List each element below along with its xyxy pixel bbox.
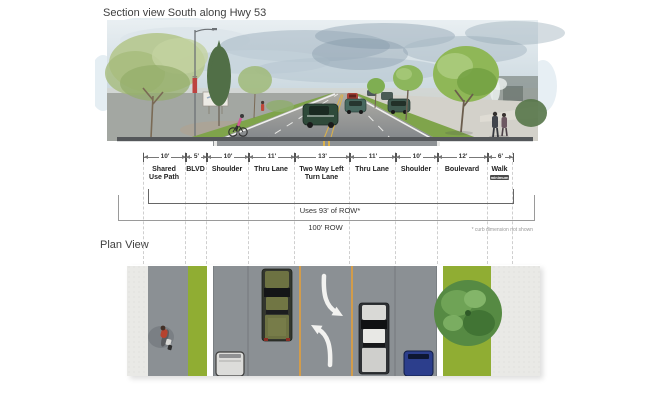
plan-view-title: Plan View [100, 239, 149, 251]
dim-segment-thru-lane-right: 11' [349, 153, 397, 162]
plan-white-car [216, 352, 244, 376]
lane-label-thru-lane-right: Thru Lane [347, 166, 397, 174]
plan-sidewalk-left [127, 266, 148, 376]
lane-label-shoulder-right: Shoulder [392, 166, 440, 174]
plan-truck-silver [359, 303, 389, 374]
plan-view-svg [127, 265, 540, 376]
curb-footnote: * curb dimension not shown [420, 227, 533, 233]
lane-label-shoulder-left: Shoulder [203, 166, 251, 174]
section-base-line [117, 137, 533, 141]
dimension-value: 13' [316, 152, 329, 162]
dim-segment-shoulder-left: 10' [206, 153, 250, 162]
dimension-value: 11' [367, 152, 379, 162]
plan-tree [434, 280, 502, 346]
dimension-value: 12' [457, 152, 470, 162]
dimension-value: 11' [266, 152, 278, 162]
dim-segment-walk: 6' [487, 153, 514, 162]
plan-truck-olive [262, 269, 292, 341]
dim-segment-shoulder-right: 10' [395, 153, 439, 162]
dimension-value: 10' [411, 152, 424, 162]
plan-blue-car [404, 351, 433, 376]
lane-label-thru-lane-left: Thru Lane [246, 166, 296, 174]
page: Section view South along Hwy 53 Plan Vie… [0, 0, 648, 400]
dim-segment-shared-use-path: 10' [143, 153, 187, 162]
dim-segment-turn-lane: 13' [294, 153, 351, 162]
dimension-value: 5' [192, 152, 201, 162]
lane-label-walk: Walk minimum [483, 166, 516, 180]
dimension-value: 6' [496, 152, 505, 162]
walk-minimum-note: minimum [490, 175, 510, 180]
dim-segment-boulevard: 12' [437, 153, 489, 162]
plan-view-illustration [127, 265, 540, 376]
dim-segment-thru-lane-left: 11' [248, 153, 296, 162]
section-illustration [95, 18, 565, 148]
row-total-bracket [118, 195, 535, 221]
teal-sedan [345, 99, 366, 114]
lane-label-boulevard: Boulevard [437, 166, 487, 174]
dim-segment-blvd: 5' [185, 153, 208, 162]
worker-figure [261, 101, 264, 111]
walk-label: Walk [491, 166, 507, 173]
dimension-value: 10' [159, 152, 172, 162]
lane-label-shared-use-path: Shared Use Path [147, 166, 181, 181]
dimension-value: 10' [222, 152, 235, 162]
plan-shared-use-path [148, 266, 188, 376]
lane-label-turn-lane: Two Way Left Turn Lane [292, 166, 351, 181]
plan-blvd-green [188, 266, 207, 376]
green-car [303, 104, 338, 128]
pole-banner [193, 78, 198, 93]
road-front-face [213, 141, 440, 146]
